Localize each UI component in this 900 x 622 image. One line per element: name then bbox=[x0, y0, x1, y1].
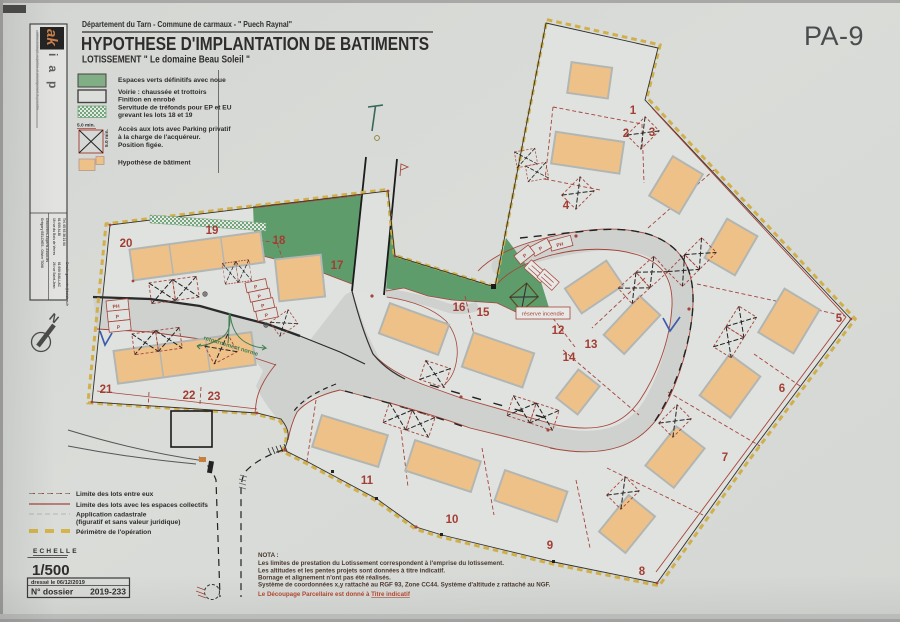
svg-text:23: 23 bbox=[208, 391, 221, 403]
svg-text:Les limites de prestation du L: Les limites de prestation du Lotissement… bbox=[258, 560, 504, 567]
svg-text:LOTISSEMENT " Le domaine Beau: LOTISSEMENT " Le domaine Beau Soleil " bbox=[82, 55, 250, 66]
svg-text:Application cadastrale: Application cadastrale bbox=[76, 512, 147, 519]
svg-text:Espaces verts définitifs avec: Espaces verts définitifs avec noue bbox=[118, 77, 226, 84]
svg-text:19: 19 bbox=[206, 225, 219, 237]
svg-text:Position figée.: Position figée. bbox=[118, 142, 163, 149]
svg-text:12: 12 bbox=[552, 325, 565, 337]
svg-text:15: 15 bbox=[477, 307, 490, 319]
svg-text:81 000 ALBI: 81 000 ALBI bbox=[57, 218, 61, 236]
svg-text:6: 6 bbox=[779, 383, 785, 395]
svg-text:NOTA :: NOTA : bbox=[258, 552, 279, 559]
svg-text:Département du Tarn - Commune: Département du Tarn - Commune de carmaux… bbox=[82, 20, 292, 29]
svg-text:grevant les lots 18 et 19: grevant les lots 18 et 19 bbox=[118, 112, 193, 119]
svg-text:7: 7 bbox=[722, 452, 728, 464]
svg-text:Tél. 05 63 38 21 04: Tél. 05 63 38 21 04 bbox=[62, 218, 66, 246]
svg-text:4: 4 bbox=[563, 200, 570, 212]
svg-text:5.0 min.: 5.0 min. bbox=[77, 123, 95, 129]
svg-text:3: 3 bbox=[649, 127, 655, 139]
svg-text:Servitude de tréfonds pour EP: Servitude de tréfonds pour EP et EU bbox=[118, 105, 232, 112]
svg-text:HYPOTHESE D'IMPLANTATION DE BA: HYPOTHESE D'IMPLANTATION DE BATIMENTS bbox=[81, 34, 429, 54]
svg-text:16: 16 bbox=[453, 302, 466, 314]
svg-text:10: 10 bbox=[446, 514, 459, 526]
svg-text:2: 2 bbox=[623, 128, 629, 140]
svg-text:81 600 GAILLAC: 81 600 GAILLAC bbox=[57, 262, 61, 287]
svg-text:18: 18 bbox=[273, 235, 286, 247]
svg-text:Les altitudes et les pentes pr: Les altitudes et les pentes projets sont… bbox=[258, 568, 445, 575]
svg-text:Finition en enrobé: Finition en enrobé bbox=[118, 97, 175, 104]
svg-text:20: 20 bbox=[120, 238, 133, 250]
svg-text:13: 13 bbox=[585, 339, 598, 351]
svg-text:21: 21 bbox=[100, 384, 113, 396]
svg-text:Accès aux lots avec Parking pr: Accès aux lots avec Parking privatif bbox=[118, 126, 231, 133]
svg-text:Email : geometre@belches.fr: Email : geometre@belches.fr bbox=[65, 262, 69, 307]
svg-text:1: 1 bbox=[630, 105, 637, 117]
svg-text:5.0 min.: 5.0 min. bbox=[104, 129, 110, 147]
svg-text:Limite des lots avec les espac: Limite des lots avec les espaces collect… bbox=[76, 502, 208, 509]
svg-text:réserve incendie: réserve incendie bbox=[522, 312, 565, 318]
svg-text:Périmètre de l'opération: Périmètre de l'opération bbox=[76, 529, 151, 536]
svg-text:11: 11 bbox=[361, 475, 374, 487]
svg-text:5: 5 bbox=[836, 313, 843, 325]
svg-text:9: 9 bbox=[547, 540, 553, 552]
svg-text:PH: PH bbox=[112, 304, 120, 311]
svg-text:Hypothèse de bâtiment: Hypothèse de bâtiment bbox=[118, 160, 191, 167]
svg-text:22: 22 bbox=[183, 390, 196, 402]
svg-text:17: 17 bbox=[331, 260, 344, 272]
svg-text:(figuratif et sans valeur juri: (figuratif et sans valeur juridique) bbox=[76, 519, 180, 526]
svg-text:à la charge de l'acquéreur.: à la charge de l'acquéreur. bbox=[118, 134, 201, 141]
svg-text:PA-9: PA-9 bbox=[804, 21, 864, 51]
svg-text:Voirie : chaussée et trottoirs: Voirie : chaussée et trottoirs bbox=[118, 89, 207, 96]
svg-text:Limite des lots entre eux: Limite des lots entre eux bbox=[76, 491, 154, 498]
svg-text:14: 14 bbox=[563, 352, 576, 364]
